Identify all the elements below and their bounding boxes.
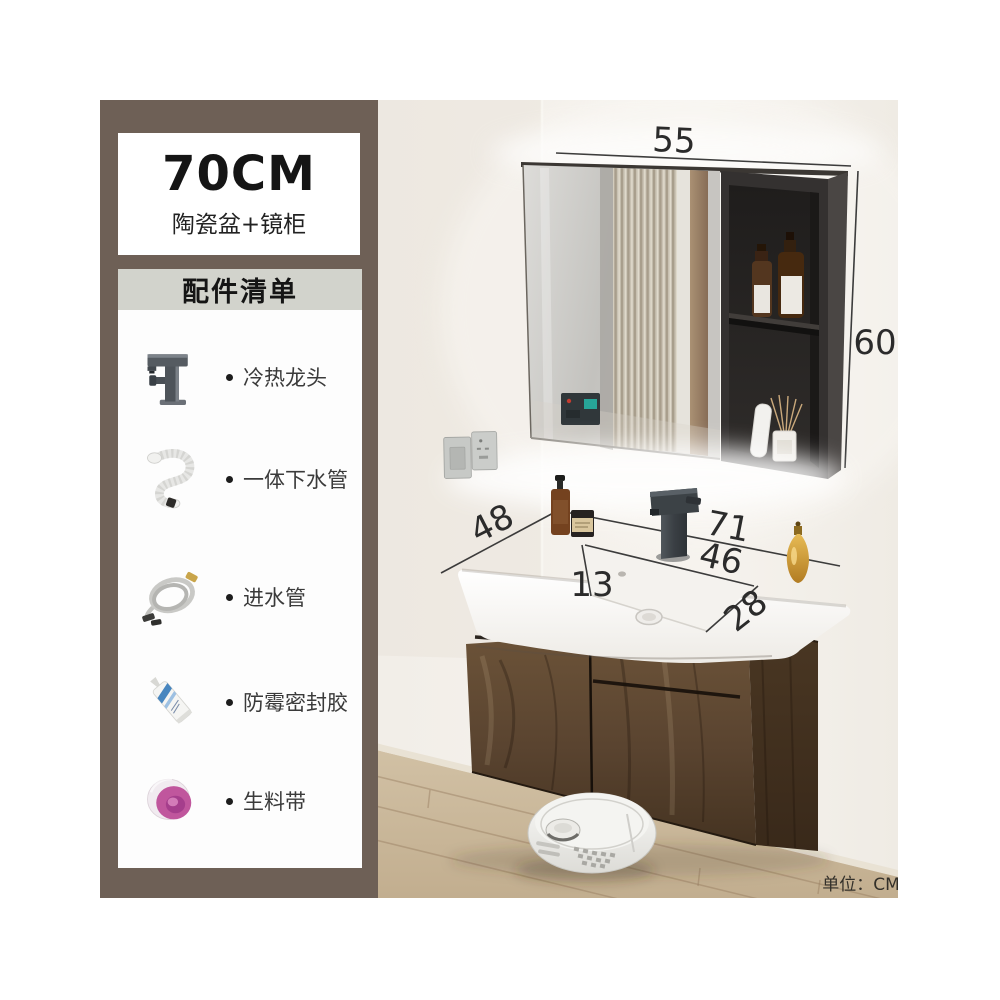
thread-seal-tape-icon: [118, 766, 226, 836]
size-value: 70CM: [162, 149, 316, 199]
accessory-item-inlet-hose: 进水管: [118, 552, 362, 642]
size-card: 70CM 陶瓷盆+镜柜: [118, 133, 360, 255]
cosmetic-jar: [571, 510, 594, 537]
dim-label-13: 13: [570, 565, 613, 605]
dim-label-55: 55: [652, 120, 697, 162]
accessory-item-drain-pipe: 一体下水管: [118, 434, 362, 524]
accessory-label: 防霉密封胶: [243, 687, 348, 717]
water-inlet-hose-icon: [118, 558, 226, 636]
info-sidebar: 70CM 陶瓷盆+镜柜 配件清单 冷热龙头: [100, 100, 378, 898]
faucet-icon: [118, 338, 226, 416]
robot-vacuum: [528, 793, 656, 873]
accessory-label: 一体下水管: [243, 464, 348, 494]
unit-note: 单位：CM: [822, 875, 900, 895]
mirror-reflected-switch: [561, 393, 600, 425]
fluted-glass-strip: [613, 168, 677, 452]
bullet-dot: [226, 798, 233, 805]
accessory-label: 生料带: [243, 786, 306, 816]
accessories-header: 配件清单: [118, 269, 362, 310]
sealant-tube-icon: [118, 663, 226, 741]
bullet-dot: [226, 476, 233, 483]
drain-pipe-icon: [118, 440, 226, 518]
accessory-item-sealant: 防霉密封胶: [118, 657, 362, 747]
accessories-header-label: 配件清单: [182, 270, 298, 309]
product-page: { "sidebar": { "size_card": { "size": "7…: [0, 0, 1000, 1000]
open-shelf-niche: [721, 171, 848, 479]
accessory-label: 冷热龙头: [243, 362, 327, 392]
size-subtitle: 陶瓷盆+镜柜: [172, 205, 306, 239]
accessory-item-faucet: 冷热龙头: [118, 332, 362, 422]
bullet-dot: [226, 594, 233, 601]
overflow-hole: [618, 571, 626, 576]
dim-label-60: 60: [853, 323, 896, 363]
accessories-panel: 冷热龙头 一体下水管: [118, 310, 362, 868]
bullet-dot: [226, 374, 233, 381]
accessory-label: 进水管: [243, 582, 306, 612]
under-cabinet-glow: [445, 446, 845, 510]
bullet-dot: [226, 699, 233, 706]
accessory-item-tape: 生料带: [118, 756, 362, 846]
